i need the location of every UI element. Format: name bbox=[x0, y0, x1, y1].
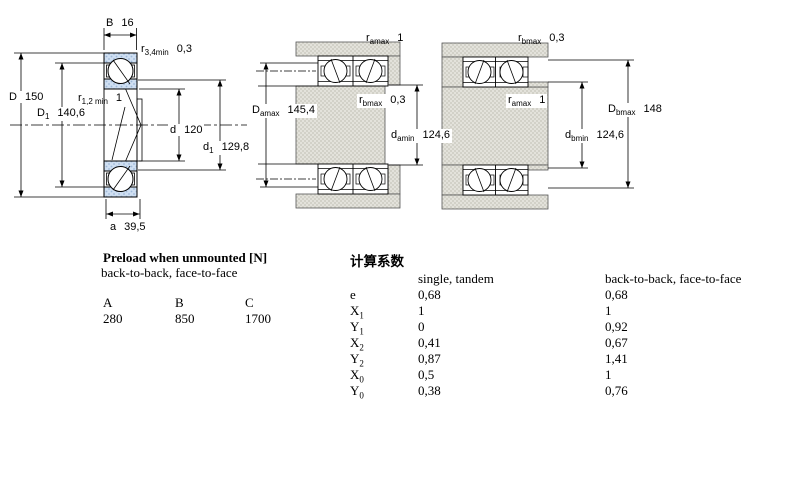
dim-label-ramax-right: ramax1 bbox=[506, 94, 547, 108]
factors-header-single-tandem: single, tandem bbox=[418, 271, 494, 287]
dim-label-r34: r3,4min0,3 bbox=[141, 43, 192, 57]
preload-val-B: 850 bbox=[175, 311, 195, 327]
dim-label-B: B16 bbox=[106, 17, 134, 29]
factors-row-X0: X0 0,5 1 bbox=[350, 367, 780, 383]
factors-row-X2: X2 0,41 0,67 bbox=[350, 335, 780, 351]
radius-leader-line bbox=[112, 107, 125, 160]
preload-val-A: 280 bbox=[103, 311, 123, 327]
bearing-section-upper bbox=[104, 53, 137, 89]
bearing-section-lower bbox=[104, 161, 137, 197]
right-diagram-dimensions bbox=[548, 60, 634, 188]
right-pair-diagram bbox=[442, 43, 634, 209]
preload-col-B: B bbox=[175, 295, 184, 311]
dim-label-d: d120 bbox=[168, 124, 204, 136]
dim-label-Dbmax: Dbmax148 bbox=[606, 103, 664, 117]
dim-label-rbmax: rbmax0,3 bbox=[357, 94, 408, 108]
factors-row-Y1: Y1 0 0,92 bbox=[350, 319, 780, 335]
left-bearing-diagram bbox=[10, 28, 247, 219]
factors-title: 计算系数 bbox=[350, 250, 404, 270]
factors-row-e: e 0,68 0,68 bbox=[350, 287, 780, 303]
dim-label-Damax: Damax145,4 bbox=[250, 104, 317, 118]
dim-label-D: D150 bbox=[7, 91, 45, 103]
factors-row-Y0: Y0 0,38 0,76 bbox=[350, 383, 780, 399]
preload-col-A: A bbox=[103, 295, 112, 311]
bearing-pair-upper bbox=[463, 57, 528, 87]
bearing-pair-lower bbox=[318, 164, 388, 194]
dim-label-dbmin: dbmin124,6 bbox=[563, 129, 626, 143]
factors-row-X1: X1 1 1 bbox=[350, 303, 780, 319]
dim-label-ramax: ramax1 bbox=[366, 32, 403, 46]
bearing-pair-upper bbox=[318, 56, 388, 86]
preload-col-C: C bbox=[245, 295, 254, 311]
middle-pair-diagram bbox=[256, 42, 423, 208]
factors-row-Y2: Y2 0,87 1,41 bbox=[350, 351, 780, 367]
dim-label-r12: r1,2 min1 bbox=[78, 92, 122, 106]
preload-title: Preload when unmounted [N] bbox=[103, 250, 267, 266]
dim-label-D1: D1140,6 bbox=[35, 107, 87, 121]
dim-label-damin: damin124,6 bbox=[389, 129, 452, 143]
bearing-datasheet-page: B16 r3,4min0,3 r1,2 min1 D150 D1140,6 d1… bbox=[0, 0, 800, 500]
bearing-pair-lower bbox=[463, 165, 528, 195]
preload-val-C: 1700 bbox=[245, 311, 271, 327]
dim-label-a: a39,5 bbox=[110, 221, 146, 233]
factors-header-back-to-back: back-to-back, face-to-face bbox=[605, 271, 741, 287]
dim-label-d1: d1129,8 bbox=[201, 141, 251, 155]
dim-label-rbmax-right: rbmax0,3 bbox=[518, 32, 565, 46]
preload-subtitle: back-to-back, face-to-face bbox=[101, 265, 237, 281]
